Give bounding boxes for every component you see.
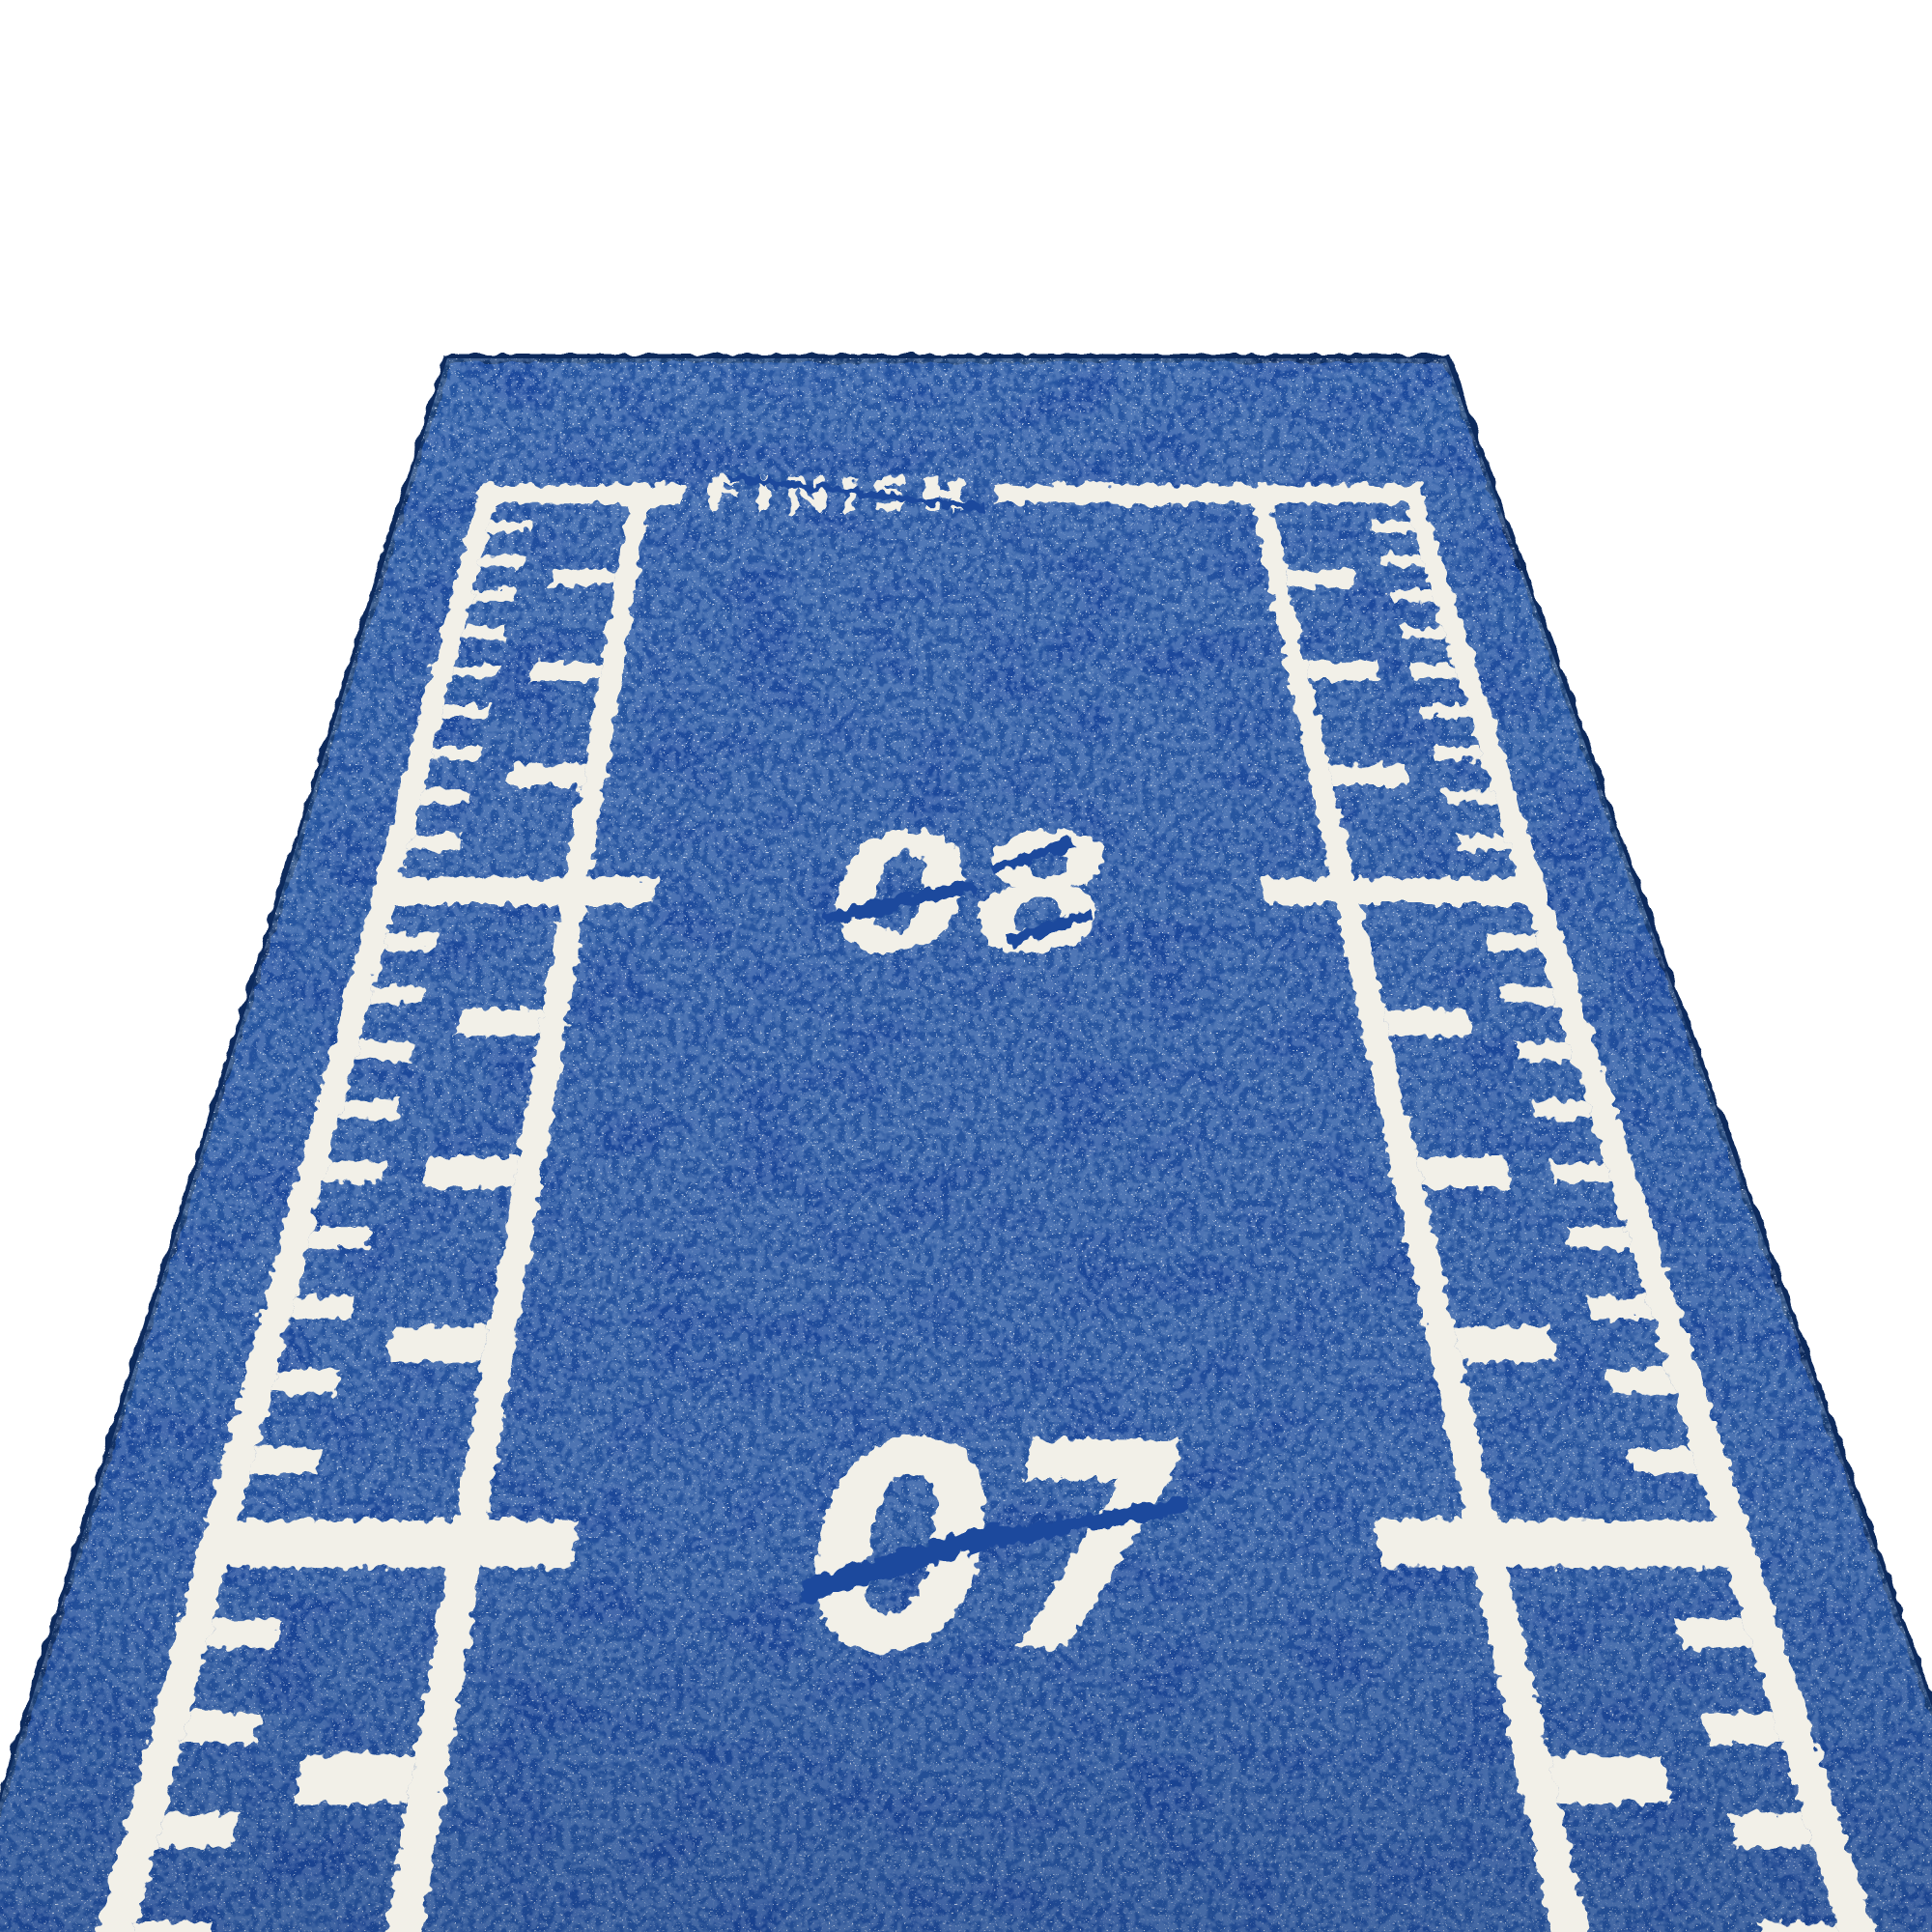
tick-medium-right	[1287, 570, 1356, 587]
tick-minor-left	[156, 1813, 239, 1847]
tick-minor-left	[250, 1447, 322, 1473]
tick-minor-right	[1759, 1922, 1847, 1932]
tick-minor-right	[1378, 555, 1424, 567]
tick-minor-right	[1457, 836, 1511, 851]
meter-line-left	[194, 1520, 579, 1568]
tick-minor-left	[340, 1100, 401, 1120]
sprint-track-mat: 0807FINISH	[0, 328, 1932, 1932]
tick-minor-left	[488, 522, 532, 532]
tick-minor-left	[206, 1618, 282, 1648]
tick-minor-right	[1409, 665, 1459, 677]
tick-medium-right	[1307, 662, 1381, 680]
tick-medium-right	[1383, 1009, 1473, 1037]
tick-medium-right	[1329, 764, 1407, 785]
tick-minor-right	[1548, 1162, 1611, 1182]
tick-minor-left	[419, 790, 471, 805]
sprint-track-mat-photo: 0807FINISH	[0, 0, 1932, 1932]
tick-minor-left	[182, 1713, 261, 1745]
tick-medium-left	[423, 1157, 518, 1188]
tick-minor-left	[355, 1041, 413, 1060]
product-photo: 0807FINISH	[0, 0, 1932, 1932]
tick-minor-left	[270, 1370, 340, 1394]
meter-line-right	[1262, 877, 1551, 904]
tick-minor-right	[1399, 627, 1447, 639]
tick-minor-left	[128, 1922, 213, 1932]
tick-minor-right	[1484, 933, 1541, 950]
tick-minor-right	[1432, 747, 1483, 760]
tick-medium-left	[507, 764, 584, 785]
tick-minor-left	[480, 555, 526, 567]
tick-minor-left	[451, 665, 499, 677]
meter-line-right	[1375, 1520, 1761, 1568]
distance-marker: 07	[776, 1384, 1211, 1715]
meter-line-left	[370, 877, 659, 904]
tick-minor-right	[1498, 986, 1557, 1004]
tick-minor-left	[307, 1227, 372, 1248]
tick-minor-right	[1627, 1447, 1699, 1473]
tick-minor-left	[324, 1162, 386, 1182]
finish-line-right-segment	[996, 485, 1425, 504]
tick-minor-left	[462, 627, 509, 639]
tick-minor-right	[1514, 1041, 1574, 1060]
tick-minor-right	[1530, 1100, 1592, 1120]
tick-minor-left	[289, 1296, 355, 1320]
tick-minor-right	[1388, 590, 1435, 602]
tick-minor-left	[383, 933, 439, 950]
tick-medium-left	[549, 570, 618, 587]
tick-minor-left	[441, 705, 491, 719]
tick-minor-right	[1584, 1296, 1652, 1320]
tick-minor-right	[1674, 1618, 1752, 1648]
tick-minor-right	[1700, 1713, 1781, 1745]
tick-minor-right	[1369, 522, 1413, 532]
distance-marker: 08	[810, 800, 1129, 988]
tick-medium-right	[1416, 1157, 1513, 1188]
tick-minor-right	[1444, 790, 1497, 805]
tick-minor-right	[1420, 705, 1470, 719]
tick-medium-left	[386, 1326, 489, 1362]
tick-minor-left	[470, 590, 517, 602]
distance-marker-label: 07	[776, 1384, 1211, 1715]
tick-medium-left	[294, 1754, 415, 1804]
tick-minor-right	[1605, 1370, 1676, 1394]
finish-line-left-segment	[475, 485, 684, 504]
tick-minor-left	[369, 986, 427, 1004]
tick-minor-right	[1566, 1227, 1632, 1248]
tick-minor-left	[408, 836, 461, 851]
tick-medium-right	[1454, 1326, 1558, 1362]
distance-marker-label: 08	[810, 800, 1129, 988]
tick-minor-right	[1729, 1813, 1813, 1847]
tick-medium-left	[455, 1009, 543, 1037]
tick-medium-left	[529, 662, 603, 680]
finish-word: FINISH	[705, 469, 984, 523]
tick-minor-left	[431, 747, 481, 760]
tick-medium-right	[1548, 1754, 1672, 1804]
